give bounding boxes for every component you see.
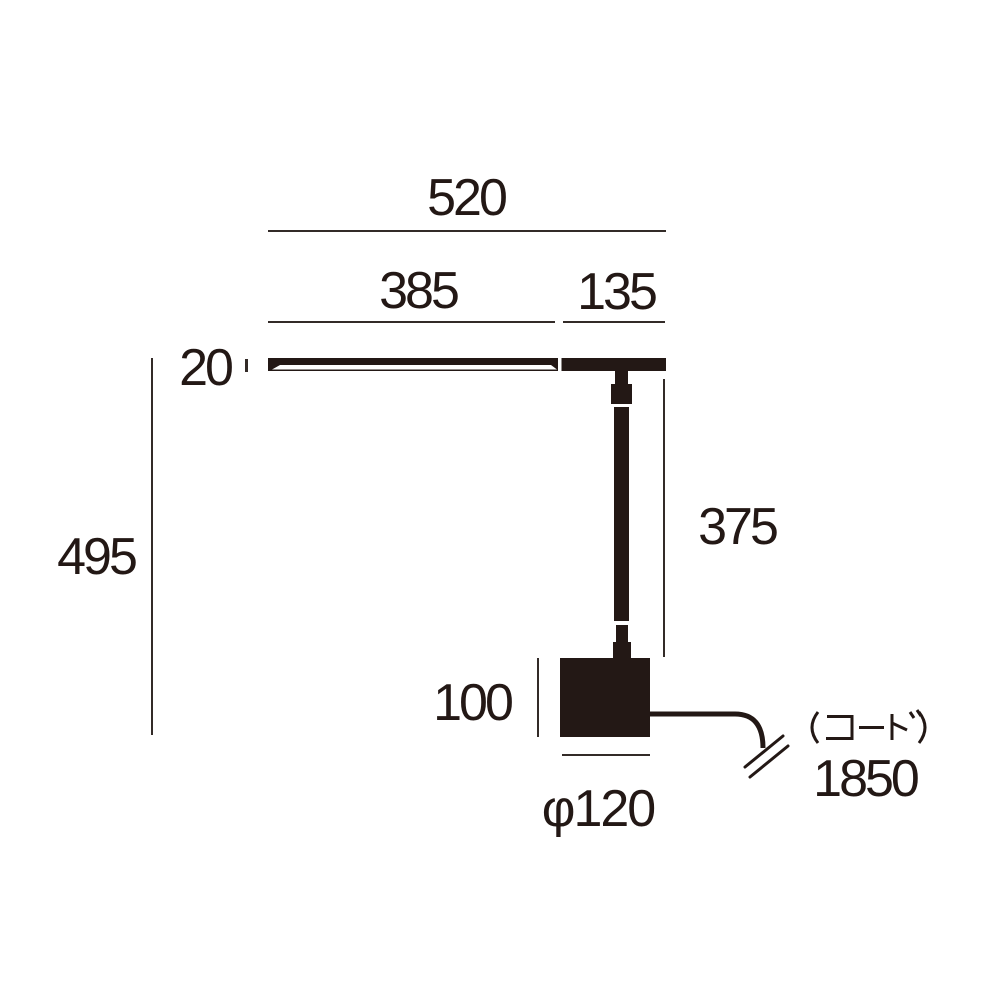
lamp-arm-pole bbox=[614, 407, 629, 621]
label-overall-height: 495 bbox=[57, 528, 136, 586]
dimension-diagram-canvas: 520 385 135 20 495 375 100 φ120 1850 bbox=[0, 0, 1000, 1000]
label-shade-thickness: 20 bbox=[179, 339, 232, 397]
label-base-diameter: φ120 bbox=[542, 780, 655, 838]
lamp-arm-top-stub bbox=[615, 371, 628, 384]
cord-break-icon bbox=[745, 736, 788, 777]
label-cord-length: 1850 bbox=[813, 750, 918, 808]
lamp-arm-lower-joint bbox=[613, 642, 631, 659]
cord-label-kana-dakuten-1 bbox=[910, 712, 914, 718]
label-pole-height: 375 bbox=[698, 498, 777, 556]
cord-label-kana-ko bbox=[826, 717, 852, 739]
cord-label bbox=[812, 710, 925, 743]
lamp-arm-lower-joint-neck bbox=[616, 625, 628, 642]
lamp-head-rear-bar bbox=[562, 358, 667, 371]
cord-label-kana-do-branch bbox=[892, 723, 907, 730]
lamp-head-diffuser-stripe bbox=[272, 365, 557, 370]
label-rear-length: 135 bbox=[577, 263, 656, 321]
label-shade-length: 385 bbox=[379, 262, 458, 320]
label-overall-width: 520 bbox=[427, 169, 506, 227]
cord-label-paren-left bbox=[812, 712, 818, 743]
lamp-arm-upper-joint bbox=[611, 384, 632, 404]
cord-break-slash-2 bbox=[750, 746, 788, 777]
power-cord bbox=[649, 714, 763, 748]
lamp-base bbox=[560, 658, 650, 737]
lamp-dimension-drawing: 520 385 135 20 495 375 100 φ120 1850 bbox=[0, 0, 1000, 1000]
lamp-head-seam bbox=[558, 357, 562, 372]
label-base-height: 100 bbox=[433, 674, 512, 732]
